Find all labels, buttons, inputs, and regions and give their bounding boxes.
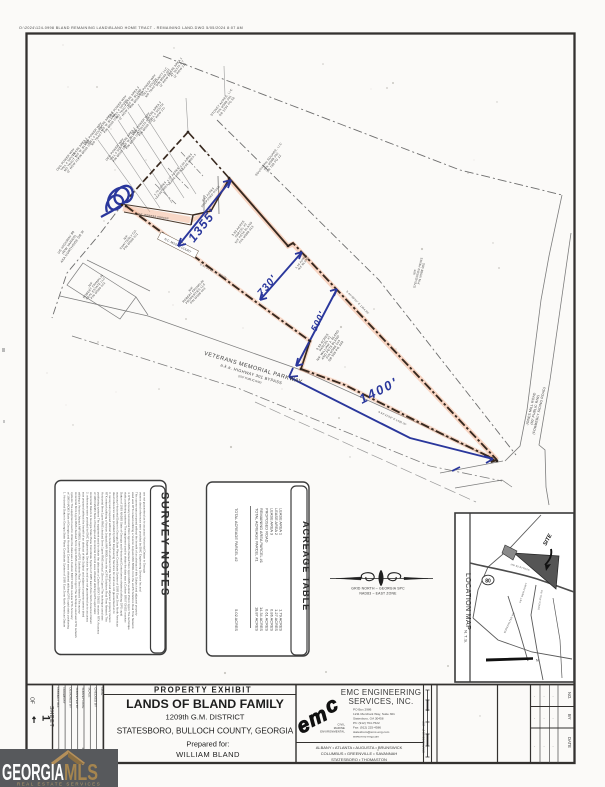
svg-text:-: - — [534, 716, 535, 720]
svg-text:-: - — [544, 716, 545, 720]
svg-text:1209th G.M. DISTRICT: 1209th G.M. DISTRICT — [166, 713, 245, 722]
svg-text:are not guaranteed as to accur: are not guaranteed as to accuracy Horizo… — [142, 492, 146, 573]
svg-text:Horizontal 8mm 1ppm RMS checke: Horizontal 8mm 1ppm RMS checked 5mm 1ppm… — [101, 492, 105, 621]
svg-text:Statesboro, GA 30458: Statesboro, GA 30458 — [353, 717, 384, 721]
svg-text:Fax: (912) 225-4586: Fax: (912) 225-4586 — [353, 726, 381, 730]
svg-text:Prepared for:: Prepared for: — [186, 740, 229, 749]
svg-text:WILLIAM BLAND: WILLIAM BLAND — [176, 750, 240, 759]
svg-text:5.02 ACRES: 5.02 ACRES — [234, 609, 239, 631]
svg-text:GRID NORTH – GEORGIA SPC: GRID NORTH – GEORGIA SPC — [351, 587, 405, 591]
svg-text:STATESBORO • THOMASTON: STATESBORO • THOMASTON — [331, 757, 387, 762]
svg-text:DRAWN BY: DRAWN BY — [62, 688, 66, 704]
svg-text:of 1983 NAD83 State of Georgia: of 1983 NAD83 State of Georgia and Horiz… — [66, 492, 70, 629]
svg-text:PROPOSED ROAD: PROPOSED ROAD — [265, 508, 270, 543]
svg-text:LOCATION MAP: LOCATION MAP — [464, 573, 471, 630]
svg-text:utilizing a Verizon Jetpack Mi: utilizing a Verizon Jetpack MiFi 8800L f… — [78, 492, 82, 614]
svg-text:EMC ENGINEERING: EMC ENGINEERING — [341, 688, 422, 697]
svg-text:O:\2024\124-0998 BLAND REMAINI: O:\2024\124-0998 BLAND REMAINING LAND\BL… — [19, 26, 243, 30]
svg-text:S 47°17′22″ W 730.12′: S 47°17′22″ W 730.12′ — [199, 263, 228, 280]
svg-text:3. survey was prepared withou: 3. survey was prepared without the benef… — [108, 492, 112, 623]
svg-text:STATESBORO, BULLOCH COUNTY, GE: STATESBORO, BULLOCH COUNTY, GEORGIA — [117, 727, 294, 736]
svg-text:-: - — [544, 744, 545, 748]
svg-text:GRAPHIC SCALE 1″ = 200′: GRAPHIC SCALE 1″ = 200′ — [422, 721, 426, 753]
svg-text:-: - — [553, 744, 554, 748]
svg-text:Horizontal Datum is Georgia St: Horizontal Datum is Georgia State Plane … — [89, 492, 93, 625]
svg-text:of 1983 NAD83 State of Georgia: of 1983 NAD83 State of Georgia and Horiz… — [93, 492, 97, 615]
svg-text:Datum of 1983 NAD83 State of G: Datum of 1983 NAD83 State of Georgia and… — [120, 492, 124, 616]
svg-text:used was RTK network utilizing: used was RTK network utilizing a Verizon… — [131, 492, 135, 629]
svg-text:2. references were provided b: 2. references were provided by EMC Engin… — [85, 492, 89, 623]
svg-text:-: - — [553, 694, 554, 698]
svg-text:MARINE: MARINE — [334, 726, 345, 730]
svg-text:0.61 ACRES: 0.61 ACRES — [265, 609, 270, 631]
svg-text:owners deed references were pr: owners deed references were provided by … — [139, 492, 143, 592]
svg-text:PROJECT NO.: PROJECT NO. — [56, 688, 60, 708]
svg-text:NAD83 – EAST ZONE: NAD83 – EAST ZONE — [359, 591, 397, 595]
svg-text:This survey was prepared witho: This survey was prepared without the ben… — [135, 492, 139, 616]
svg-text:systems The equipment used to: systems The equipment used to obtain the… — [70, 492, 74, 620]
svg-text:statesboro@emc-eng.com: statesboro@emc-eng.com — [353, 730, 390, 734]
svg-text:LANDS OF BLAND FAMILY: LANDS OF BLAND FAMILY — [126, 697, 285, 711]
svg-text:1355′: 1355′ — [185, 206, 220, 245]
svg-text:accuracy Horizontal Datum is G: accuracy Horizontal Datum is Georgia Sta… — [116, 492, 120, 627]
svg-text:4. RTK Accuracy Horizontal 8m: 4. RTK Accuracy Horizontal 8mm 1ppm RMS … — [127, 492, 131, 630]
svg-text:www.emc-eng.com: www.emc-eng.com — [353, 735, 380, 739]
svg-text:SURVEYED BY: SURVEYED BY — [75, 688, 79, 709]
svg-text:SHEET: SHEET — [48, 706, 54, 727]
svg-text:80: 80 — [485, 578, 491, 584]
svg-text:DESIGNED BY: DESIGNED BY — [69, 688, 73, 709]
svg-text:TOTAL ACREAGE PARCEL #1: TOTAL ACREAGE PARCEL #1 — [255, 508, 260, 562]
svg-text:18.87 ACRES: 18.87 ACRES — [255, 607, 260, 631]
svg-text:static positioning systems The: static positioning systems The equipment… — [123, 492, 127, 623]
svg-text:1211 Merchant Way, Suite 301: 1211 Merchant Way, Suite 301 — [353, 712, 395, 716]
svg-text:-: - — [534, 744, 535, 748]
svg-text:deed references were provided: deed references were provided by EMC Eng… — [112, 492, 116, 614]
svg-text:OF: OF — [29, 697, 35, 704]
svg-text:ENVIRONMENTAL: ENVIRONMENTAL — [320, 730, 345, 734]
svg-text:500′: 500′ — [309, 309, 327, 332]
svg-text:was prepared without the benef: was prepared without the benefit of an a… — [82, 492, 86, 618]
svg-text:PO Box 2986: PO Box 2986 — [353, 708, 372, 712]
svg-text:SCALE: SCALE — [87, 688, 91, 698]
svg-text:SURVEY DATE: SURVEY DATE — [81, 688, 85, 709]
svg-text:-: - — [544, 694, 545, 698]
svg-text:Ph: (912) 764-7522: Ph: (912) 764-7522 — [353, 721, 380, 725]
svg-text:COLUMBUS • GREENVILLE • SA: COLUMBUS • GREENVILLE • SAVANNAH — [321, 751, 398, 756]
svg-text:1. Horizontal Datum is Georgi: 1. Horizontal Datum is Georgia State Pla… — [63, 492, 67, 628]
svg-text:-: - — [553, 716, 554, 720]
svg-text:SURVEY NOTES: SURVEY NOTES — [159, 492, 171, 597]
svg-text:RTK network utilizing a Verizo: RTK network utilizing a Verizon Jetpack … — [104, 492, 108, 622]
svg-text:REAL ESTATE SERVICES: REAL ESTATE SERVICES — [17, 782, 101, 787]
svg-text:DATE: DATE — [567, 737, 572, 748]
svg-text:-: - — [534, 694, 535, 698]
svg-text:PROPERTY EXHIBIT: PROPERTY EXHIBIT — [154, 686, 252, 695]
svg-text:BY: BY — [567, 714, 572, 720]
svg-text:CHECKED BY: CHECKED BY — [94, 688, 98, 708]
svg-text:SERVICES, INC.: SERVICES, INC. — [349, 697, 414, 706]
svg-text:TOTAL ACREAGE PARCEL #2: TOTAL ACREAGE PARCEL #2 — [234, 508, 239, 562]
svg-text:Horizontal 8mm 1ppm RMS checke: Horizontal 8mm 1ppm RMS checked 5mm 1ppm… — [74, 492, 78, 638]
svg-text:N.T.S.: N.T.S. — [464, 630, 469, 644]
svg-text:positioning systems The equipm: positioning systems The equipment used t… — [97, 492, 101, 635]
svg-text:ALBANY • ATLANTA • AUGUSTA: ALBANY • ATLANTA • AUGUSTA • BRUNSWICK — [316, 745, 403, 750]
svg-text:NO.: NO. — [567, 692, 572, 699]
svg-text:CIVIL: CIVIL — [338, 722, 346, 726]
svg-text:730′: 730′ — [255, 273, 280, 299]
svg-text:ACREAGE TABLE: ACREAGE TABLE — [301, 521, 311, 611]
